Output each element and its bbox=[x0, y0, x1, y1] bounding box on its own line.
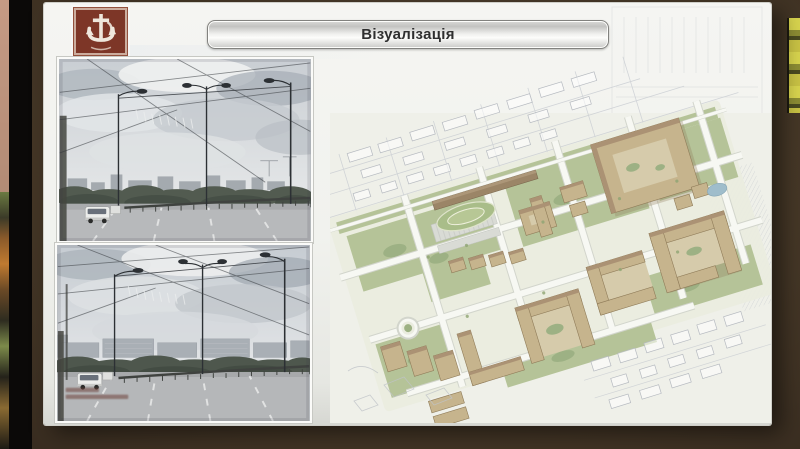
room-object-strip bbox=[787, 18, 800, 113]
street-photo-top bbox=[57, 57, 313, 243]
vinnytsia-emblem bbox=[73, 7, 128, 56]
slide-title-bar: Візуалізація bbox=[207, 20, 609, 49]
thin-pole bbox=[66, 284, 68, 380]
anchor-icon bbox=[83, 11, 119, 53]
street-photo-bottom bbox=[55, 243, 312, 423]
screen-bezel bbox=[9, 0, 32, 449]
slide-title: Візуалізація bbox=[361, 26, 455, 43]
masterplan-rendering bbox=[330, 55, 771, 423]
photograph-of-projected-slide: Візуалізація bbox=[0, 0, 800, 449]
room-wall-strip bbox=[0, 0, 9, 210]
distant-vehicle bbox=[103, 372, 113, 380]
presentation-slide: Візуалізація bbox=[44, 3, 771, 425]
distant-vehicle bbox=[111, 206, 121, 214]
